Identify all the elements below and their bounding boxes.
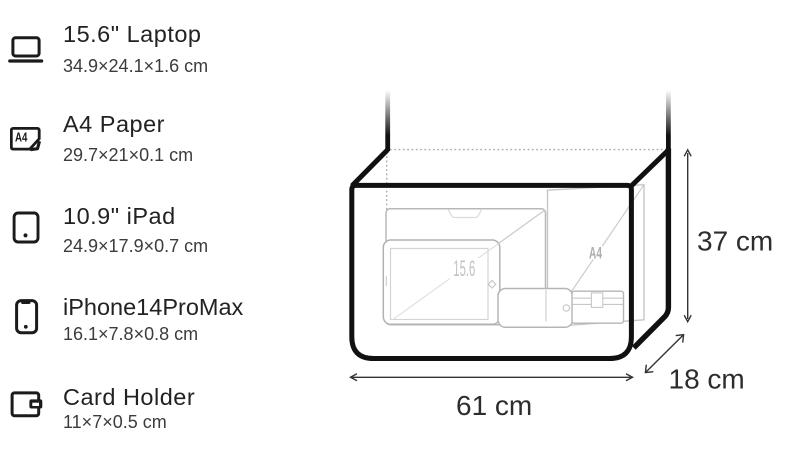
svg-text:37 cm: 37 cm xyxy=(697,226,773,257)
svg-text:61 cm: 61 cm xyxy=(456,390,532,421)
svg-text:A4: A4 xyxy=(589,243,602,262)
svg-text:15.6: 15.6 xyxy=(453,256,475,281)
svg-text:18 cm: 18 cm xyxy=(669,363,745,394)
